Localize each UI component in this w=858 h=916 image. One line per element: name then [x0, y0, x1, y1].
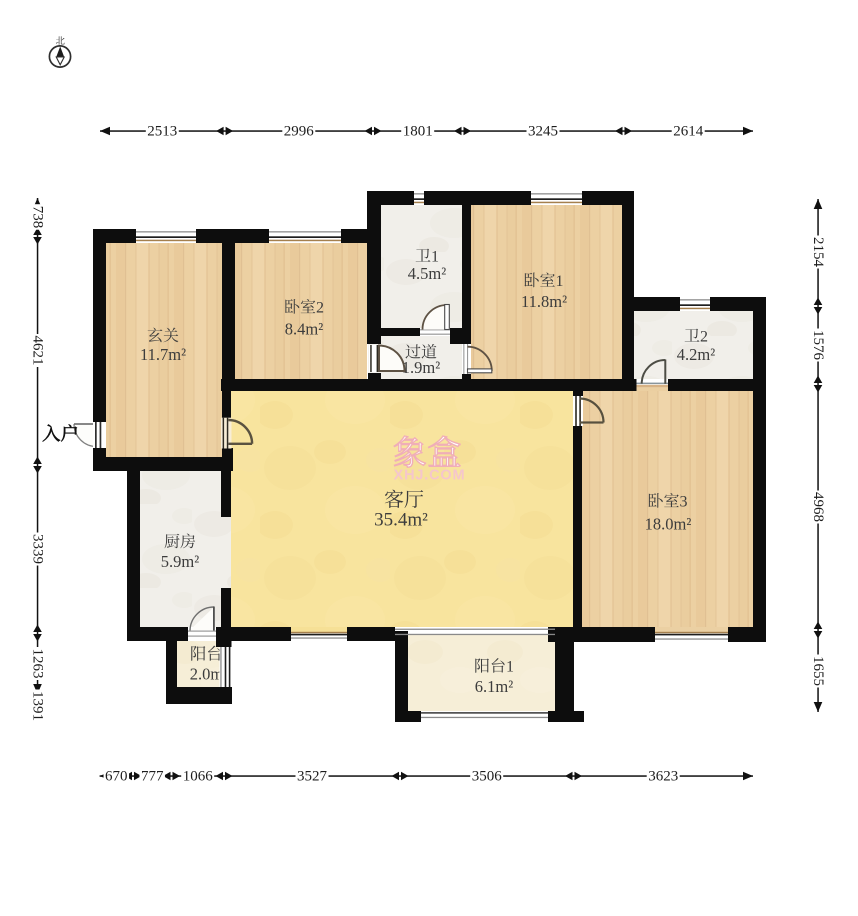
- svg-text:6.1m²: 6.1m²: [475, 677, 513, 696]
- svg-text:3527: 3527: [297, 769, 328, 785]
- svg-text:1576: 1576: [810, 330, 826, 361]
- svg-text:2154: 2154: [810, 237, 826, 268]
- svg-text:1391: 1391: [30, 691, 46, 721]
- svg-text:2513: 2513: [147, 124, 177, 140]
- svg-text:3: 3: [680, 494, 688, 511]
- svg-text:35.4m²: 35.4m²: [374, 510, 428, 531]
- svg-text:1: 1: [556, 273, 564, 290]
- svg-text:1801: 1801: [403, 124, 433, 140]
- svg-text:2: 2: [700, 329, 708, 346]
- svg-text:4.5m²: 4.5m²: [408, 264, 446, 283]
- svg-text:1263: 1263: [30, 649, 46, 679]
- svg-text:2614: 2614: [673, 124, 704, 140]
- svg-text:18.0m²: 18.0m²: [645, 515, 692, 534]
- svg-text:1655: 1655: [810, 656, 826, 686]
- svg-text:11.7m²: 11.7m²: [140, 345, 186, 364]
- svg-text:1: 1: [431, 249, 439, 266]
- svg-text:4621: 4621: [30, 336, 46, 366]
- svg-text:5.9m²: 5.9m²: [161, 552, 199, 571]
- svg-text:738: 738: [30, 206, 46, 229]
- svg-text:11.8m²: 11.8m²: [521, 292, 567, 311]
- svg-text:1066: 1066: [183, 769, 214, 785]
- svg-text:1: 1: [506, 659, 514, 676]
- svg-text:XHJ.COM: XHJ.COM: [394, 468, 466, 484]
- svg-text:3339: 3339: [30, 534, 46, 564]
- svg-text:3245: 3245: [528, 124, 558, 140]
- svg-text:1.9m²: 1.9m²: [402, 358, 440, 377]
- svg-text:3623: 3623: [648, 769, 678, 785]
- svg-text:670: 670: [105, 769, 128, 785]
- svg-text:2996: 2996: [284, 124, 315, 140]
- svg-text:2: 2: [316, 300, 324, 317]
- svg-text:8.4m²: 8.4m²: [285, 320, 323, 339]
- svg-text:3506: 3506: [472, 769, 503, 785]
- svg-text:777: 777: [141, 769, 164, 785]
- svg-text:4968: 4968: [810, 492, 826, 522]
- svg-text:4.2m²: 4.2m²: [677, 345, 715, 364]
